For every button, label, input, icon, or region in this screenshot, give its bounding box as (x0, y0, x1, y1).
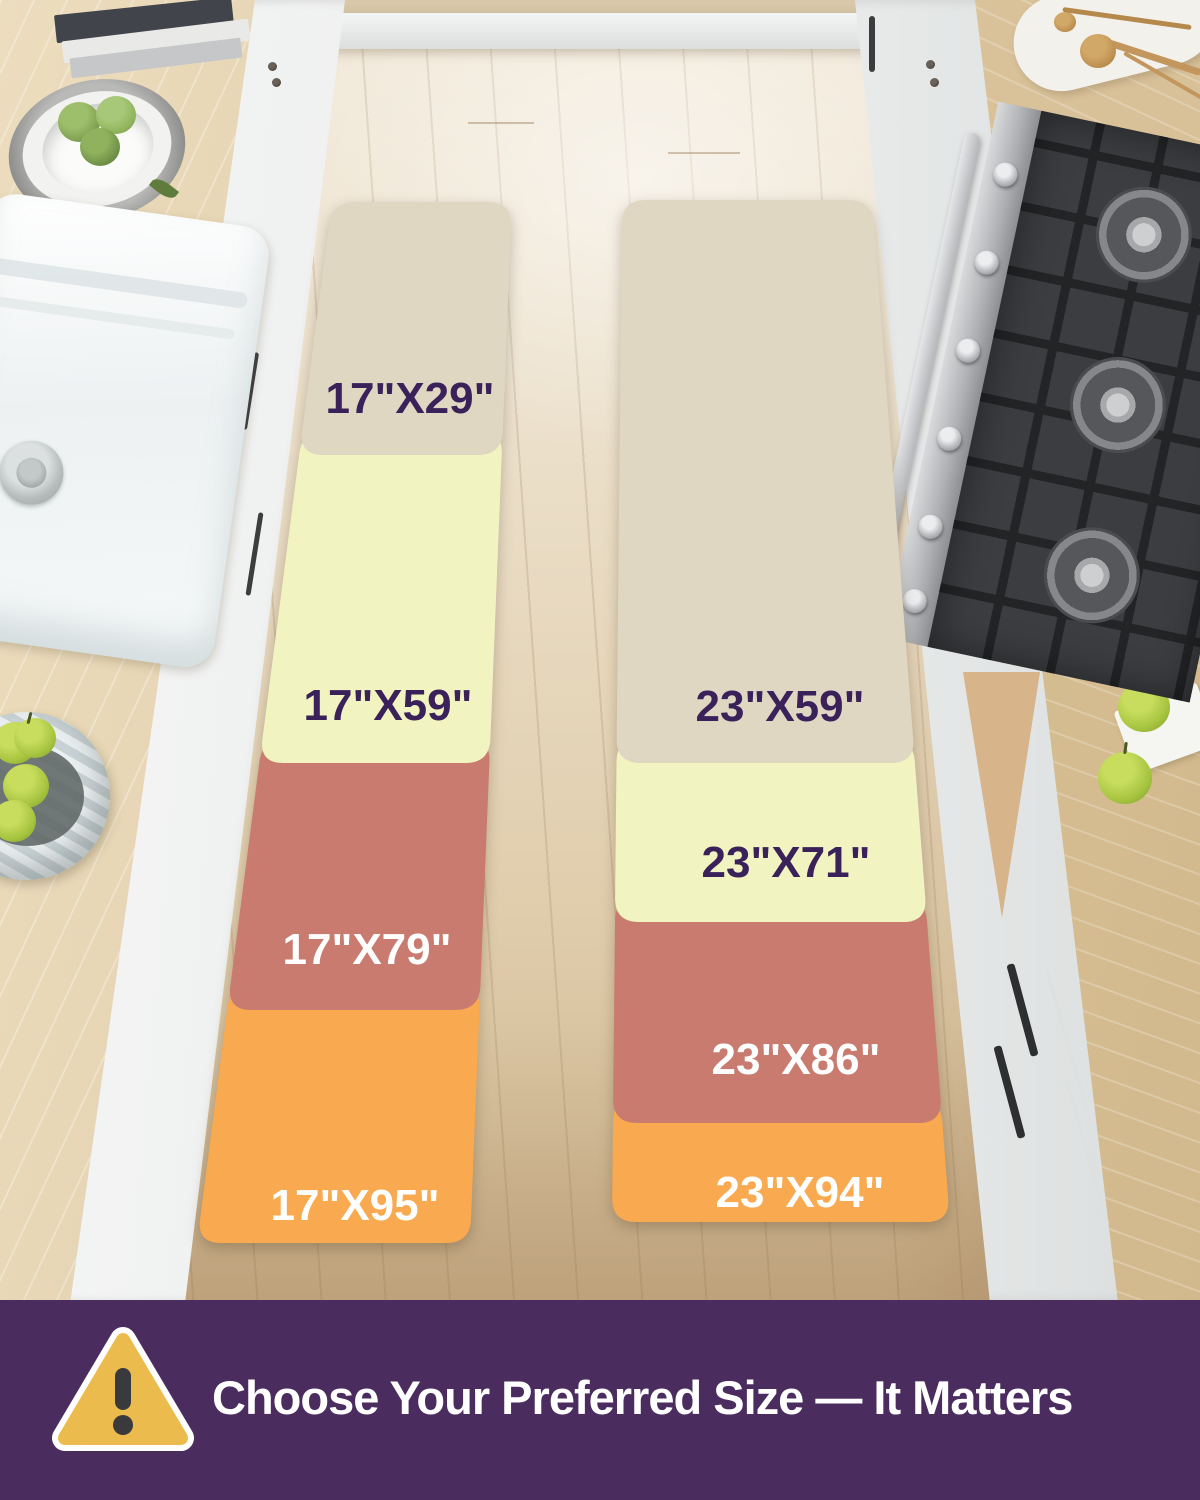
size-swatches (0, 0, 1200, 1303)
size-label-17x29: 17"X29" (326, 374, 495, 424)
size-label-23x86: 23"X86" (712, 1035, 881, 1085)
swatch-23x86 (613, 897, 941, 1123)
size-label-17x59: 17"X59" (304, 681, 473, 731)
size-label-17x79: 17"X79" (283, 925, 452, 975)
banner-title: Choose Your Preferred Size — It Matters (212, 1362, 1072, 1432)
swatch-23x71 (615, 738, 925, 922)
size-label-17x95: 17"X95" (271, 1181, 440, 1231)
warning-exclamation-dot (113, 1415, 133, 1435)
size-label-23x71: 23"X71" (702, 838, 871, 888)
warning-exclamation-bar (115, 1368, 131, 1410)
size-label-23x59: 23"X59" (696, 682, 865, 732)
warning-triangle-icon (52, 1326, 194, 1456)
size-label-23x94: 23"X94" (716, 1168, 885, 1218)
product-size-infographic: 17"X29" 17"X59" 17"X79" 17"X95" 23"X59" … (0, 0, 1200, 1500)
swatch-23x59 (617, 200, 914, 763)
